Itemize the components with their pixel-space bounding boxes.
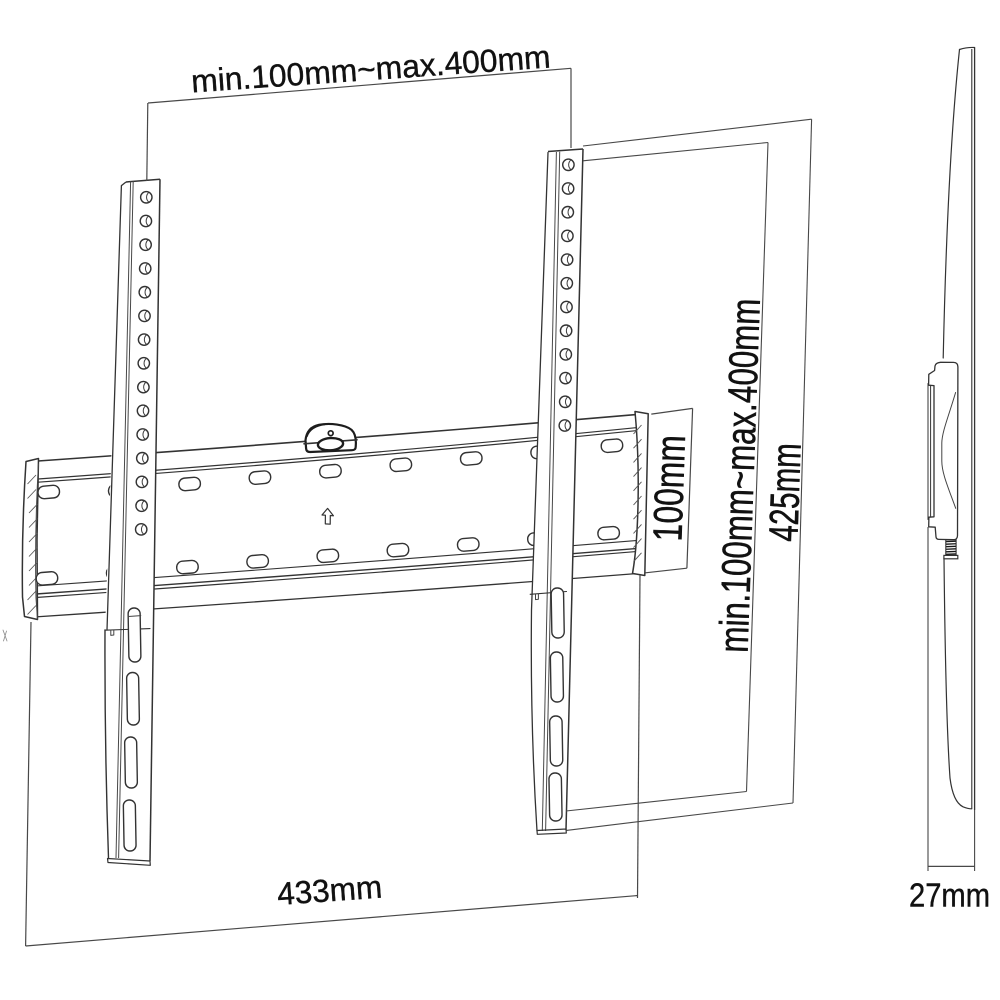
- svg-text:425mm: 425mm: [761, 442, 810, 542]
- svg-text:433mm: 433mm: [276, 869, 383, 912]
- svg-text:100mm: 100mm: [645, 434, 694, 542]
- svg-text:27mm: 27mm: [909, 877, 990, 914]
